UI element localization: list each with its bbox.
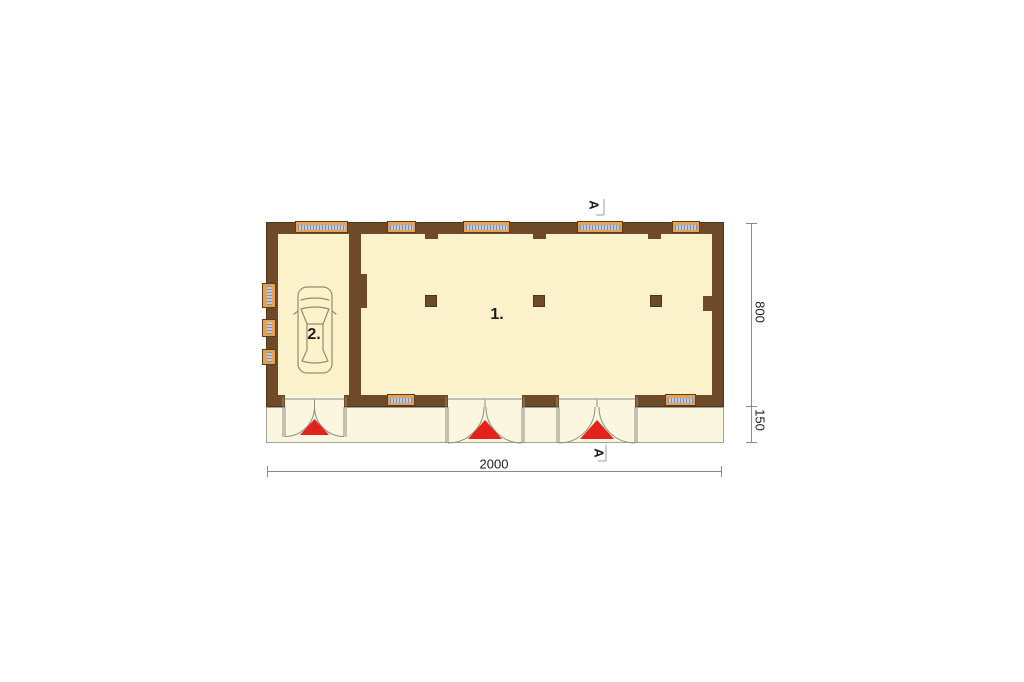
- window-glass: [390, 225, 413, 230]
- window-glass: [267, 286, 272, 305]
- window-left-1: [262, 283, 276, 308]
- window-glass: [668, 398, 693, 403]
- window-bottom-2: [665, 394, 696, 406]
- dimension-tick: [746, 442, 757, 443]
- garage-door-opening: [285, 395, 344, 408]
- dimension-tick: [746, 223, 757, 224]
- dimension-tick: [746, 406, 757, 407]
- window-top-1: [295, 221, 348, 233]
- door-opening-1: [448, 395, 522, 408]
- column-1: [425, 295, 437, 307]
- room-1-floor: [361, 234, 712, 395]
- room-2-floor: [278, 234, 349, 395]
- floor-plan-canvas: 1. 2. A A 2000 800 150: [0, 0, 1024, 682]
- window-glass: [390, 398, 412, 403]
- dimension-tick: [721, 466, 722, 477]
- window-top-5: [672, 221, 700, 233]
- window-glass: [580, 225, 620, 230]
- window-left-2: [262, 319, 276, 337]
- column-3: [650, 295, 662, 307]
- room-1-label: 1.: [490, 306, 503, 324]
- wall-notch-3: [648, 234, 661, 239]
- dimension-main-depth-value: 800: [753, 301, 768, 323]
- porch-area: [266, 407, 724, 443]
- window-bottom-1: [387, 394, 415, 406]
- wall-notch-2: [533, 234, 546, 239]
- dimension-width-value: 2000: [480, 457, 509, 472]
- door-opening-2: [559, 395, 635, 408]
- pilaster-partition-wall: [361, 274, 367, 308]
- window-glass: [267, 352, 272, 362]
- window-left-3: [262, 349, 276, 365]
- section-marker-bottom: A: [592, 448, 607, 457]
- window-glass: [675, 225, 697, 230]
- dimension-porch-depth-value: 150: [753, 409, 768, 431]
- window-top-3: [463, 221, 510, 233]
- window-top-4: [577, 221, 623, 233]
- window-top-2: [387, 221, 416, 233]
- pilaster-right-wall: [703, 296, 712, 311]
- room-2-label: 2.: [307, 326, 320, 344]
- column-2: [533, 295, 545, 307]
- wall-notch-1: [425, 234, 438, 239]
- section-marker-top: A: [587, 200, 602, 209]
- window-glass: [298, 225, 345, 230]
- window-glass: [267, 322, 272, 334]
- dimension-tick: [267, 466, 268, 477]
- window-glass: [466, 225, 507, 230]
